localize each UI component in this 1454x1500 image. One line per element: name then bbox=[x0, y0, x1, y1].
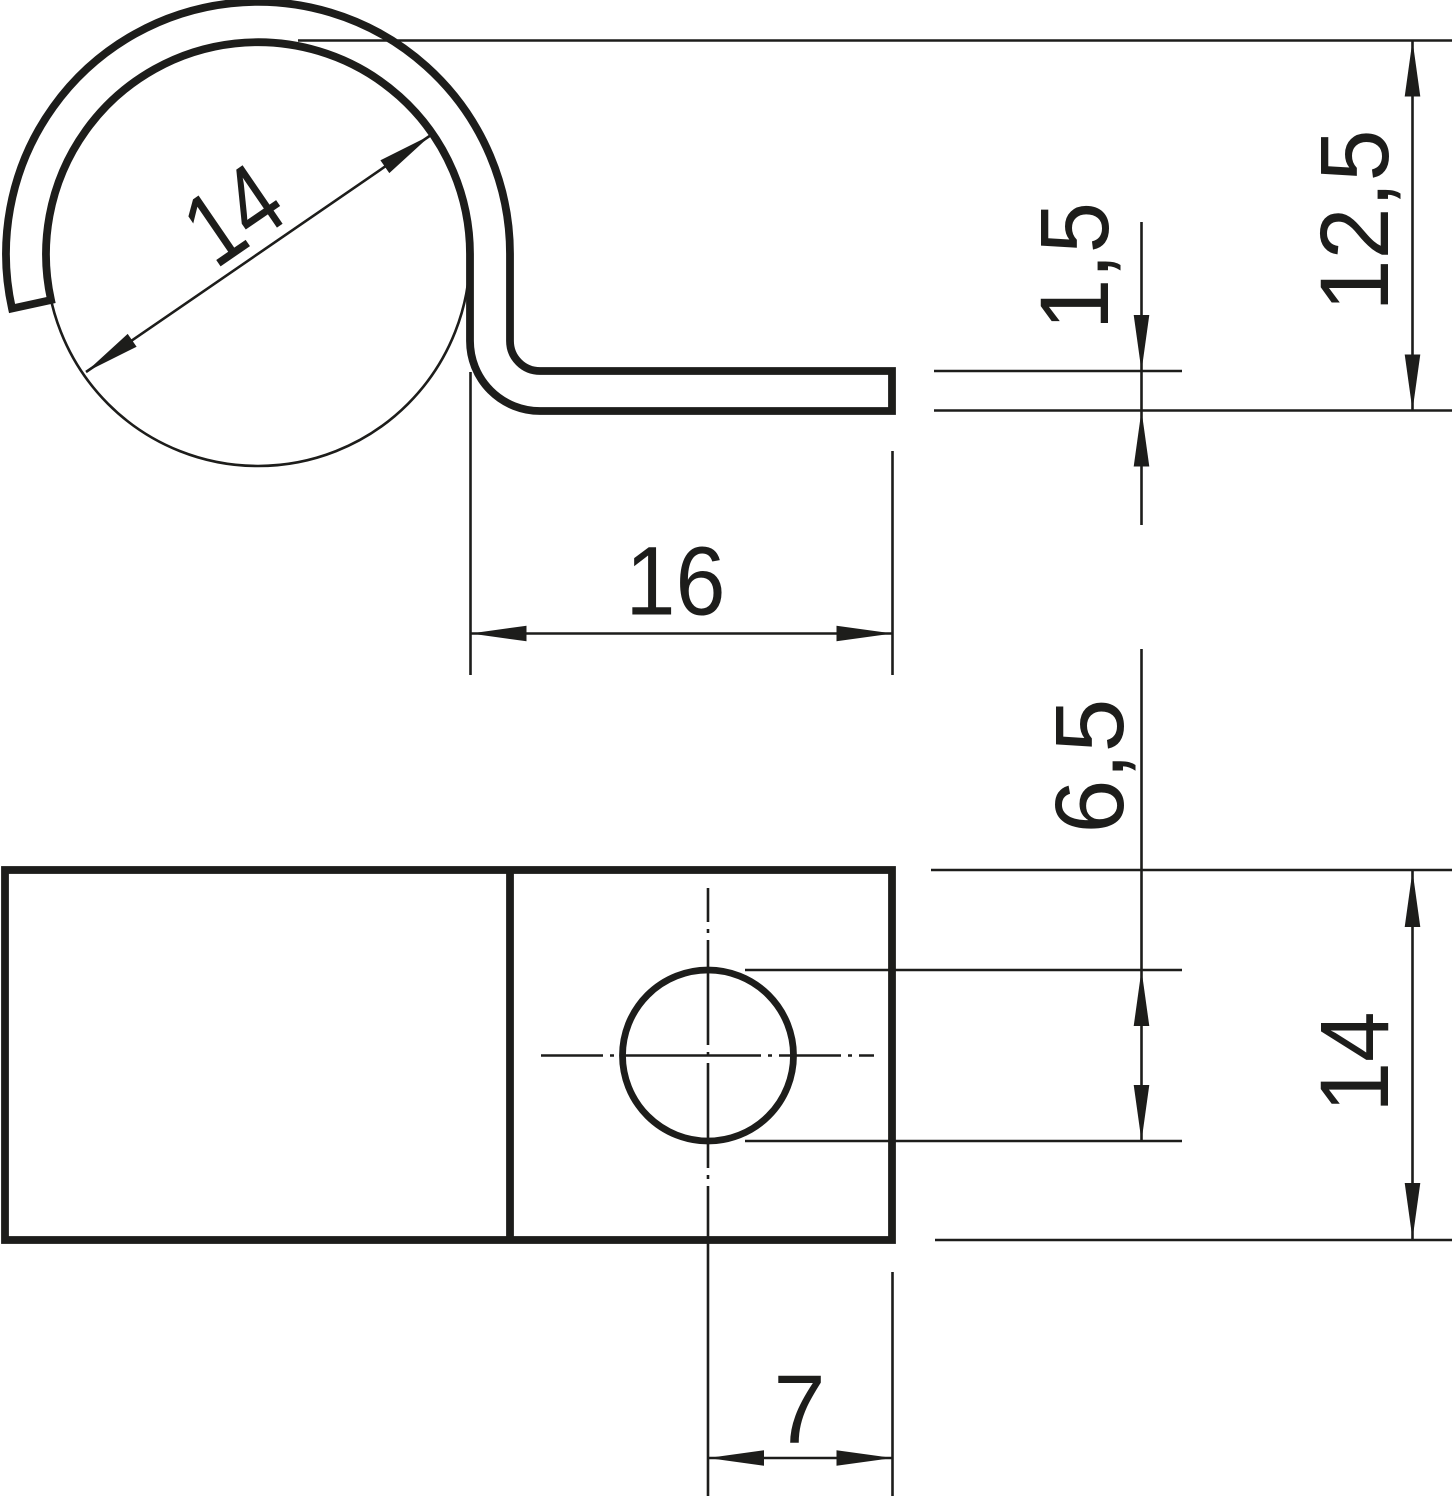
svg-text:7: 7 bbox=[774, 1355, 826, 1464]
svg-text:16: 16 bbox=[626, 527, 726, 636]
svg-text:14: 14 bbox=[1300, 1012, 1409, 1113]
svg-text:1,5: 1,5 bbox=[1020, 202, 1129, 330]
svg-text:12,5: 12,5 bbox=[1300, 130, 1409, 312]
svg-text:6,5: 6,5 bbox=[1035, 699, 1144, 834]
